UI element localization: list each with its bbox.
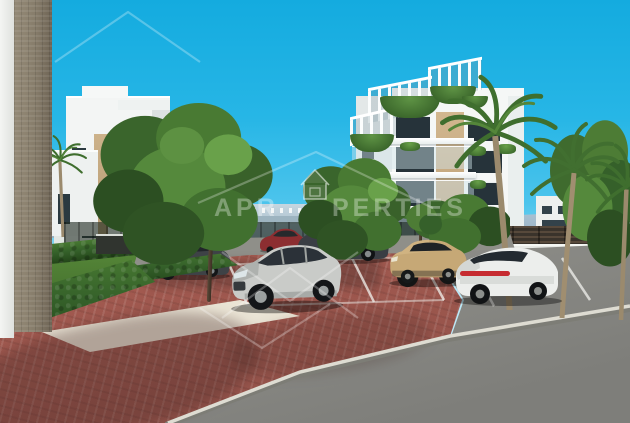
foreground-white-wall [0,0,14,338]
palm-tree [585,140,630,320]
foreground-travertine-column [14,0,52,332]
white-fastback-sedan-car [450,238,566,308]
silver-suv-car [223,232,350,316]
property-render-scene: APR PERTIES [0,0,630,423]
